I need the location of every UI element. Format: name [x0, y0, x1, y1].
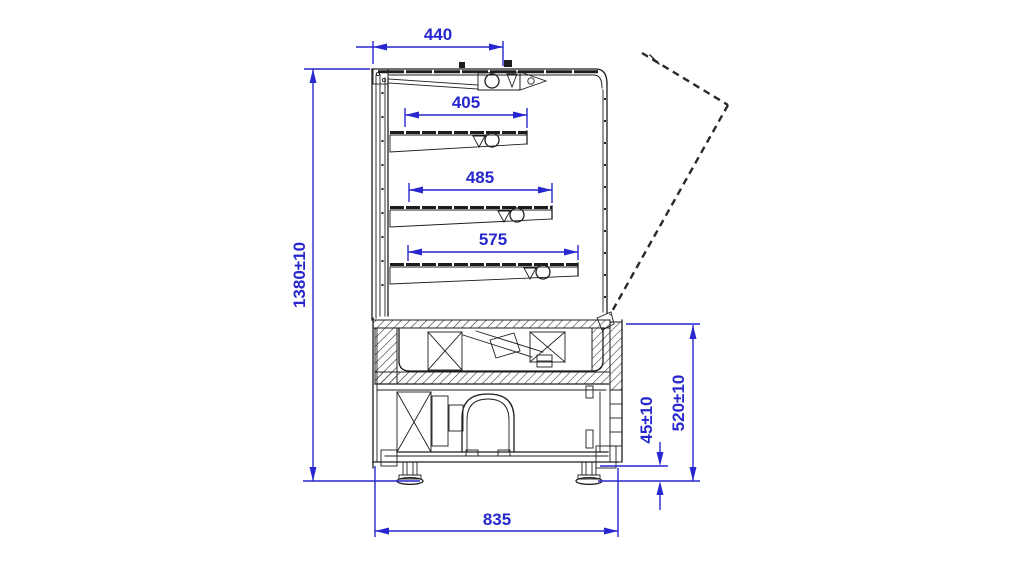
front-glass — [597, 84, 614, 330]
dim-overall-height: 1380±10 — [290, 69, 420, 481]
dim-base-depth: 835 — [375, 466, 618, 537]
glass-door-open-position — [610, 53, 728, 315]
dim-shelf-2: 485 — [409, 168, 552, 203]
dim-shelf-1: 405 — [405, 93, 527, 128]
shelf-2 — [390, 206, 552, 227]
dim-shelf-3: 575 — [408, 230, 578, 261]
dim-label-835: 835 — [483, 510, 511, 529]
cabinet-back-wall — [372, 69, 388, 320]
dim-label-485: 485 — [466, 168, 494, 187]
display-case-section-drawing: 440 405 485 575 1380±10 — [0, 0, 1024, 567]
dim-label-575: 575 — [479, 230, 507, 249]
dim-label-440: 440 — [424, 25, 452, 44]
shelf-1 — [390, 131, 527, 152]
technical-drawing-canvas: 440 405 485 575 1380±10 — [0, 0, 1024, 567]
base-plinth — [373, 446, 618, 468]
refrigerated-well — [375, 328, 610, 384]
base-counter-slab — [373, 320, 610, 328]
shelf-3 — [390, 263, 578, 284]
dim-label-520: 520±10 — [669, 375, 688, 432]
dim-canopy-depth: 440 — [356, 25, 503, 66]
dim-label-1380: 1380±10 — [290, 242, 309, 308]
dim-label-45: 45±10 — [637, 396, 656, 443]
dim-label-405: 405 — [452, 93, 480, 112]
base-front-panel — [610, 320, 622, 462]
